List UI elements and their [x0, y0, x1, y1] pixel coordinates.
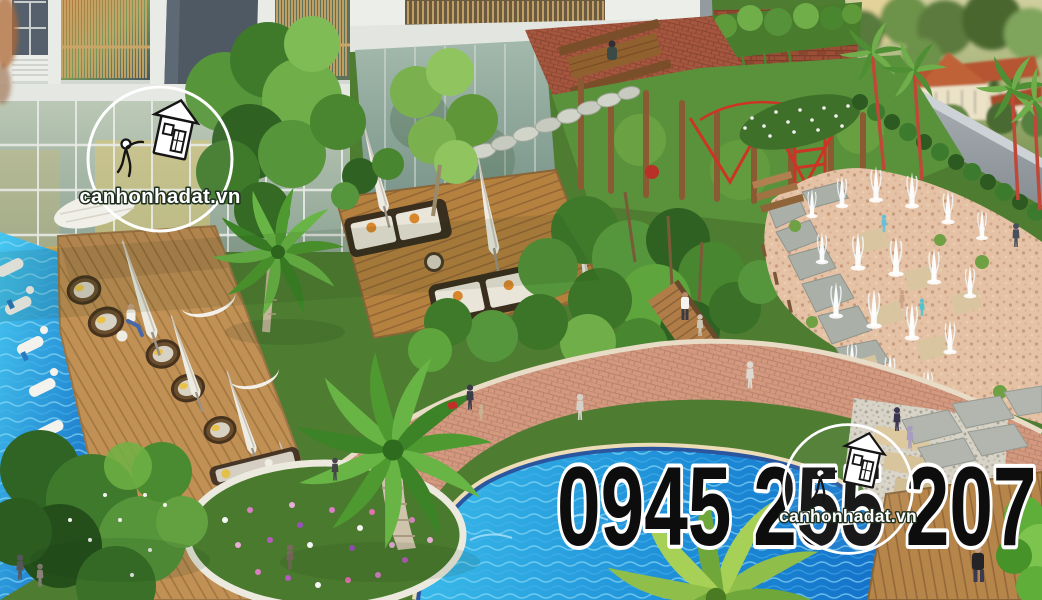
watermark-circle [88, 87, 232, 231]
watermark-logo-text: canhonhadat.vn [79, 185, 240, 208]
watermark-logo-text: canhonhadat.vn [779, 506, 917, 526]
rendered-courtyard-image: 0945 255 207 canhonhadat.vn ca [0, 0, 1042, 600]
